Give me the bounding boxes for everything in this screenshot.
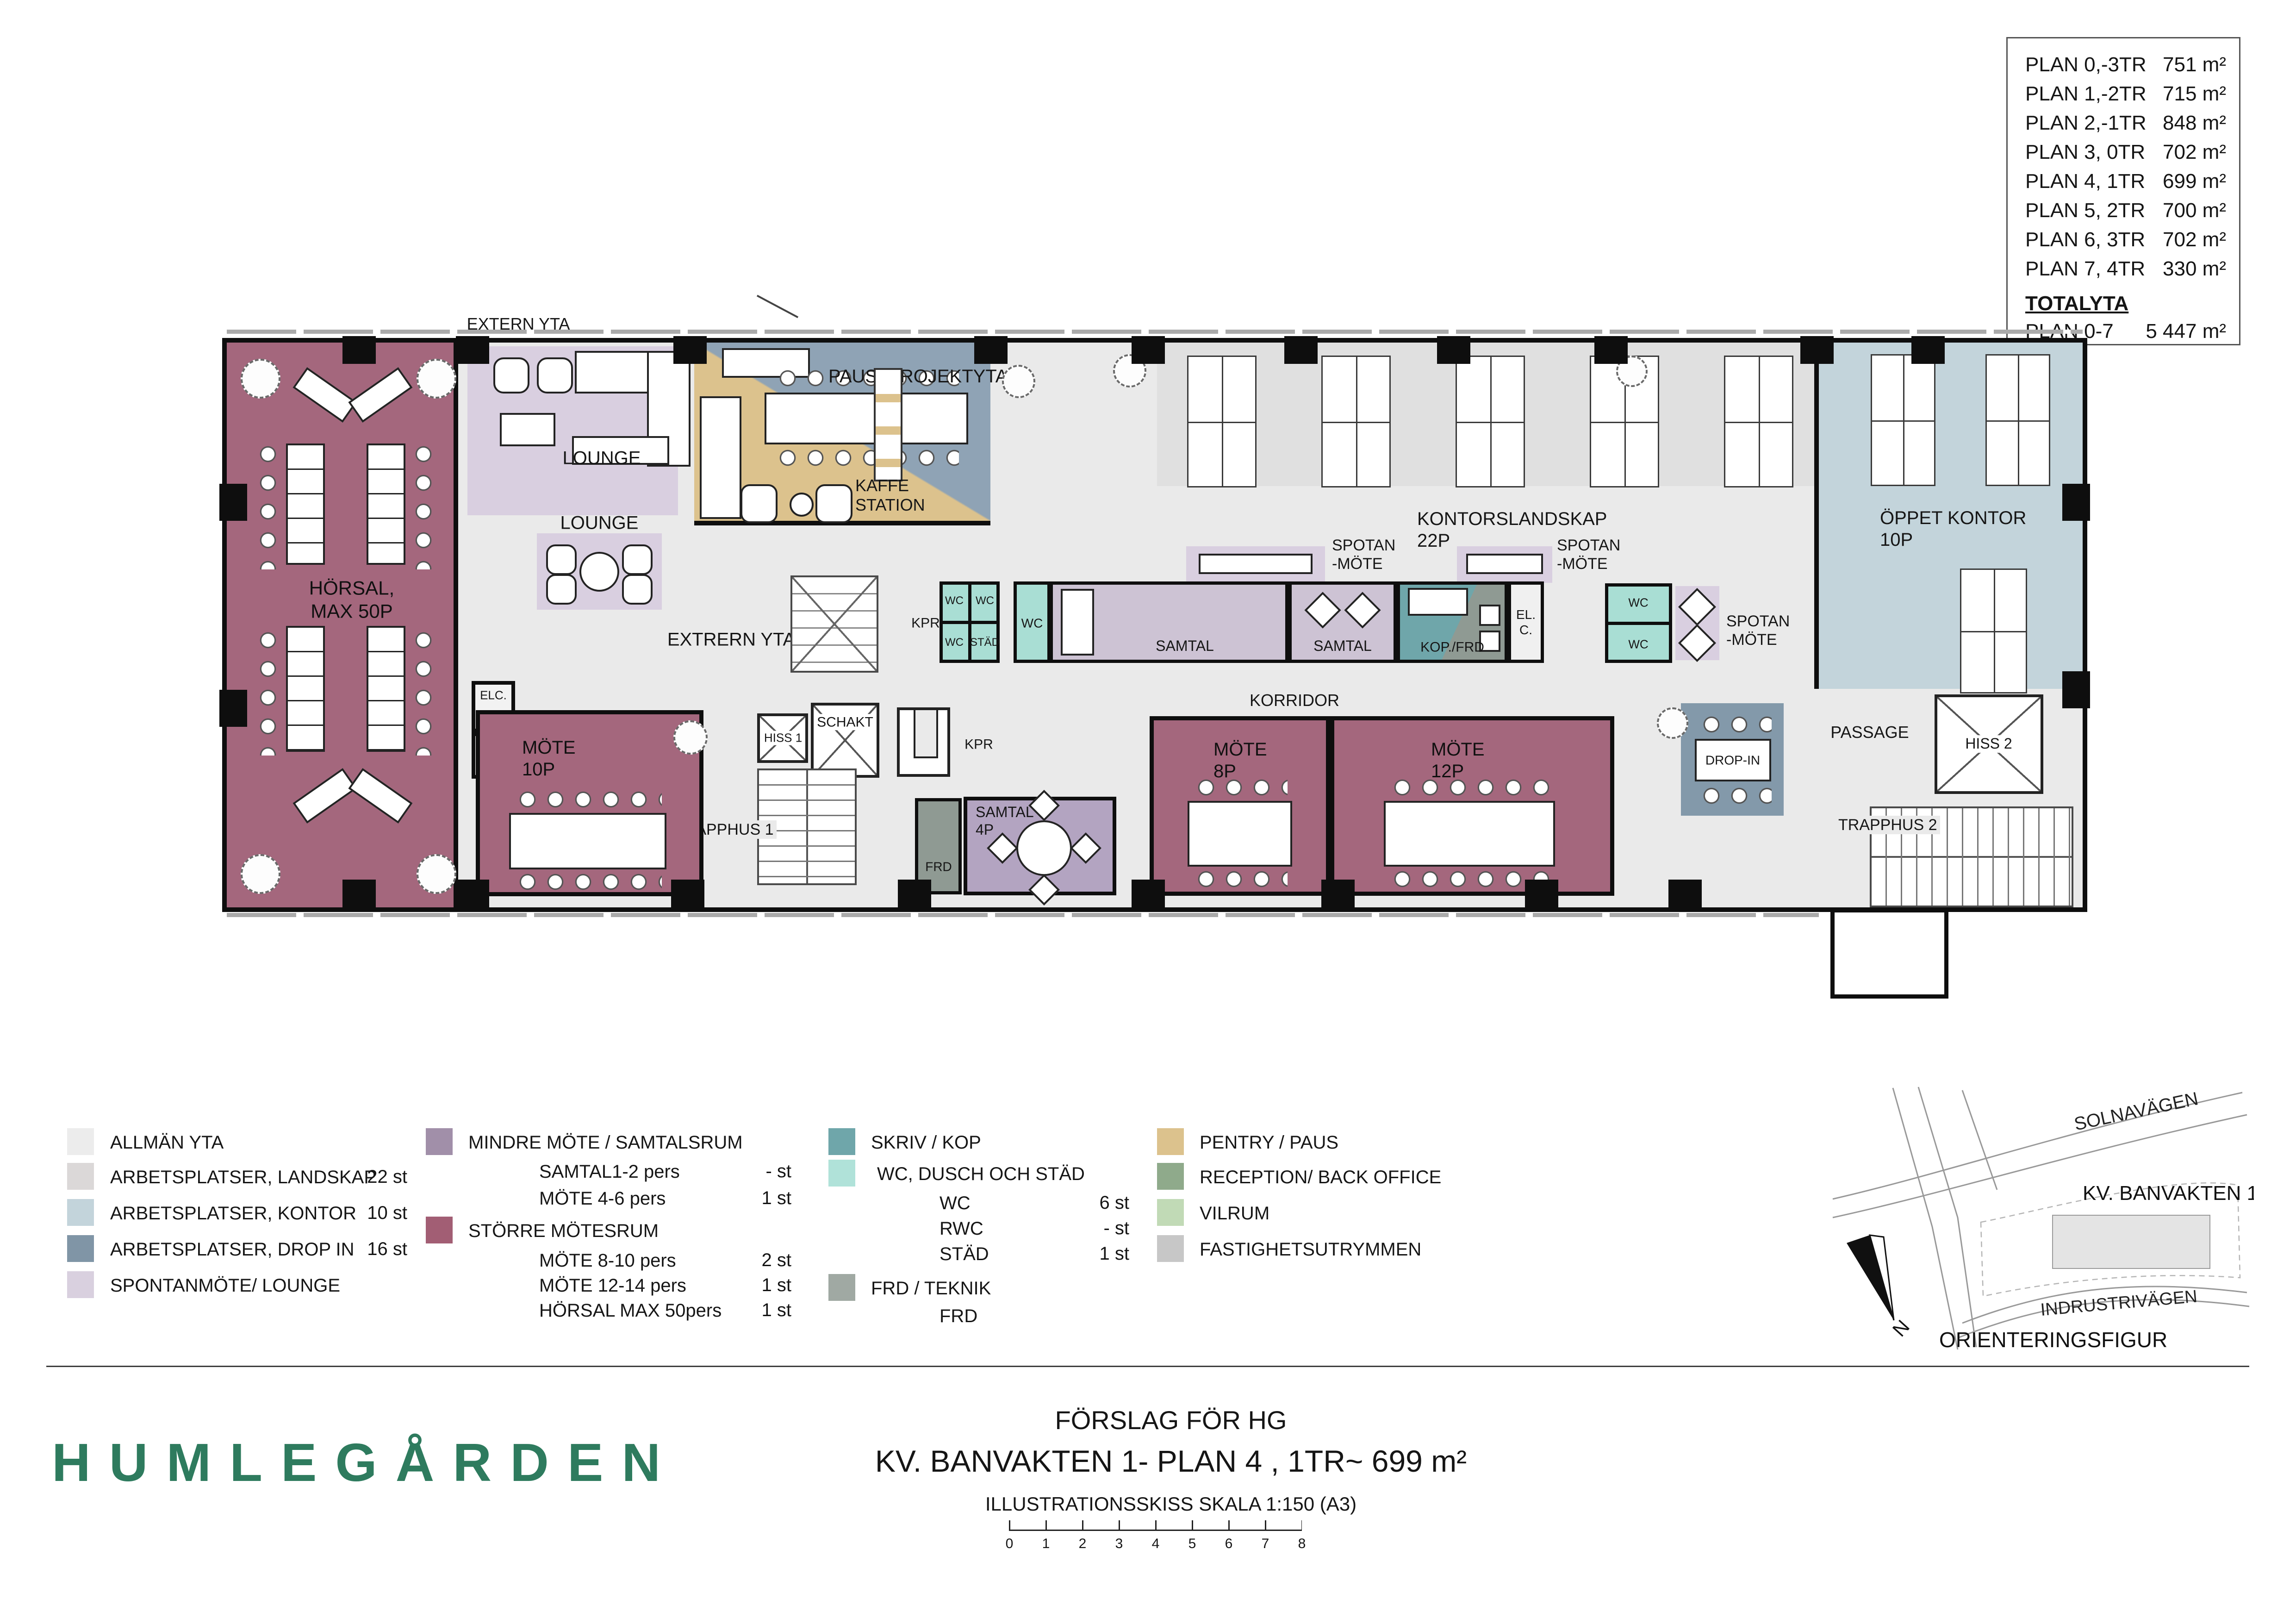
legend-label: RECEPTION/ BACK OFFICE bbox=[1200, 1167, 1441, 1188]
pillar bbox=[1132, 880, 1165, 907]
block-label: KV. BANVAKTEN 1 bbox=[2083, 1182, 2254, 1205]
side-table bbox=[790, 493, 814, 517]
armchair bbox=[546, 544, 577, 575]
armchair bbox=[493, 357, 529, 394]
legend-sublabel: SAMTAL1-2 pers bbox=[539, 1161, 680, 1183]
scale-number: 0 bbox=[1006, 1536, 1014, 1552]
orientation-figure: SOLNAVÄGEN KV. BANVAKTEN 1 INDRUSTRIVÄGE… bbox=[1823, 1079, 2254, 1352]
swatch-skriv-kop bbox=[828, 1128, 855, 1155]
scale-number: 5 bbox=[1188, 1536, 1196, 1552]
legend-sublabel: MÖTE 4-6 pers bbox=[539, 1188, 666, 1210]
divider-line bbox=[46, 1366, 2249, 1367]
row-value: 715 m² bbox=[2163, 82, 2226, 106]
pillar bbox=[1594, 336, 1628, 364]
pillar bbox=[1437, 336, 1470, 364]
desk-cluster bbox=[1985, 354, 2050, 486]
chairs bbox=[1698, 714, 1772, 735]
plant bbox=[241, 359, 280, 399]
chairs bbox=[774, 447, 959, 468]
horsal-table-column bbox=[286, 443, 325, 565]
table-row: PLAN 7, 4TR330 m² bbox=[2025, 257, 2226, 281]
label-paus-projektyta: PAUS/ PROJEKTYTA bbox=[828, 366, 1008, 387]
legend-label: PENTRY / PAUS bbox=[1200, 1132, 1338, 1154]
row-label: PLAN 3, 0TR bbox=[2025, 141, 2145, 164]
legend-count: 22 st bbox=[338, 1167, 407, 1187]
label-frd: FRD bbox=[925, 859, 952, 874]
legend-count: 1 st bbox=[722, 1188, 791, 1209]
legend-label: ARBETSPLATSER, DROP IN bbox=[110, 1239, 355, 1261]
legend-count: 6 st bbox=[1060, 1193, 1129, 1213]
label-wc: WC bbox=[1021, 615, 1043, 631]
horsal-table-column bbox=[367, 626, 405, 752]
label-passage: PASSAGE bbox=[1830, 723, 1909, 742]
row-label: PLAN 6, 3TR bbox=[2025, 228, 2145, 251]
label-hiss1: HISS 1 bbox=[762, 731, 804, 745]
chairs bbox=[413, 440, 434, 569]
humlegarden-logo: HUMLEGÅRDEN bbox=[52, 1431, 679, 1493]
scale-number: 2 bbox=[1079, 1536, 1087, 1552]
swatch-frd-teknik bbox=[828, 1274, 855, 1301]
label-korridor: KORRIDOR bbox=[1250, 691, 1339, 710]
armchair bbox=[537, 357, 573, 394]
coffee-table bbox=[500, 413, 555, 446]
row-value: 848 m² bbox=[2163, 112, 2226, 135]
row-label: PLAN 0,-3TR bbox=[2025, 53, 2147, 76]
row-value: 702 m² bbox=[2163, 228, 2226, 251]
label-spotanmote: SPOTAN -MÖTE bbox=[1557, 536, 1620, 573]
scale-bar bbox=[1009, 1520, 1302, 1531]
scale-number: 3 bbox=[1115, 1536, 1123, 1552]
scale-number: 8 bbox=[1298, 1536, 1306, 1552]
legend-label: VILRUM bbox=[1200, 1203, 1269, 1224]
total-heading: TOTALYTA bbox=[2025, 292, 2226, 315]
pillar bbox=[1525, 880, 1558, 907]
scale-number: 1 bbox=[1042, 1536, 1050, 1552]
swatch-wc-dusch bbox=[828, 1160, 855, 1187]
label-mote-8p: MÖTE 8P bbox=[1213, 739, 1267, 782]
label-stad: STÄD bbox=[970, 636, 1000, 649]
title-line-3: ILLUSTRATIONSSKISS SKALA 1:150 (A3) bbox=[985, 1493, 1356, 1515]
label-hiss2: HISS 2 bbox=[1962, 735, 2015, 753]
pillar bbox=[2062, 671, 2090, 708]
row-label: PLAN 4, 1TR bbox=[2025, 170, 2145, 193]
label-samtal: SAMTAL bbox=[1156, 637, 1214, 655]
standing-table bbox=[1199, 554, 1313, 574]
swatch-reception bbox=[1157, 1163, 1184, 1190]
horsal-table-column bbox=[367, 443, 405, 565]
label-samtal: SAMTAL bbox=[1313, 637, 1372, 655]
site-building bbox=[2053, 1215, 2210, 1268]
scale-number: 6 bbox=[1225, 1536, 1233, 1552]
legend-sublabel: WC bbox=[940, 1193, 971, 1214]
pillar bbox=[898, 880, 931, 907]
legend-count: 16 st bbox=[338, 1239, 407, 1260]
meeting-table bbox=[1188, 801, 1292, 867]
legend-label: ARBETSPLATSER, LANDSKAP bbox=[110, 1167, 376, 1188]
chairs bbox=[1388, 777, 1550, 798]
window-band-north bbox=[227, 330, 2083, 334]
label-el-c: EL. C. bbox=[1516, 607, 1536, 637]
legend-count: 2 st bbox=[722, 1250, 791, 1271]
legend-label: ARBETSPLATSER, KONTOR bbox=[110, 1203, 356, 1224]
desk-cluster bbox=[1321, 356, 1391, 487]
standing-table bbox=[1466, 554, 1543, 574]
swatch-storre-motesrum bbox=[426, 1217, 453, 1243]
pillar bbox=[219, 484, 247, 521]
chairs bbox=[1192, 777, 1288, 798]
room-horsal bbox=[227, 343, 458, 907]
plant bbox=[417, 854, 456, 894]
row-label: PLAN 5, 2TR bbox=[2025, 199, 2145, 222]
stair-upper bbox=[790, 575, 878, 673]
legend-label: MINDRE MÖTE / SAMTALSRUM bbox=[468, 1132, 743, 1154]
scale-number: 4 bbox=[1152, 1536, 1160, 1552]
horsal-table-column bbox=[286, 626, 325, 752]
label-horsal: HÖRSAL, MAX 50P bbox=[309, 576, 394, 622]
road-label: SOLNAVÄGEN bbox=[2072, 1088, 2200, 1135]
pillar bbox=[974, 336, 1008, 364]
tick-mark bbox=[757, 295, 798, 318]
row-value: 330 m² bbox=[2163, 257, 2226, 281]
label-lounge-upper: LOUNGE bbox=[563, 447, 641, 469]
row-label: PLAN 7, 4TR bbox=[2025, 257, 2145, 281]
row-value: 702 m² bbox=[2163, 141, 2226, 164]
armchair bbox=[740, 484, 778, 523]
meeting-table bbox=[509, 813, 666, 869]
armchair bbox=[815, 484, 852, 523]
floorplan-sheet: PLAN 0,-3TR751 m² PLAN 1,-2TR715 m² PLAN… bbox=[0, 0, 2296, 1624]
north-label: N bbox=[1888, 1316, 1914, 1341]
kaffe-counter bbox=[874, 368, 902, 481]
round-table bbox=[579, 552, 619, 592]
title-line-2: KV. BANVAKTEN 1- PLAN 4 , 1TR~ 699 m² bbox=[875, 1443, 1467, 1479]
label-wc: WC bbox=[945, 594, 964, 607]
label-wc: WC bbox=[1628, 637, 1648, 652]
legend-label: SPONTANMÖTE/ LOUNGE bbox=[110, 1275, 340, 1297]
chairs bbox=[514, 789, 662, 810]
armchair bbox=[622, 544, 653, 575]
pillar bbox=[1132, 336, 1165, 364]
legend-label: FASTIGHETSUTRYMMEN bbox=[1200, 1239, 1421, 1261]
orientation-caption: ORIENTERINGSFIGUR bbox=[1939, 1328, 2167, 1352]
legend-count: 1 st bbox=[722, 1275, 791, 1296]
table-row: PLAN 6, 3TR702 m² bbox=[2025, 228, 2226, 251]
table-row: PLAN 3, 0TR702 m² bbox=[2025, 141, 2226, 164]
swatch-vilrum bbox=[1157, 1199, 1184, 1226]
swatch-allman-yta bbox=[67, 1128, 94, 1155]
area-table: PLAN 0,-3TR751 m² PLAN 1,-2TR715 m² PLAN… bbox=[2006, 37, 2240, 345]
label-trapphus2: TRAPPHUS 2 bbox=[1836, 816, 1940, 834]
pillar bbox=[219, 690, 247, 727]
label-spotanmote: SPOTAN -MÖTE bbox=[1726, 612, 1790, 649]
stair-extension bbox=[1830, 908, 1948, 999]
plant bbox=[673, 720, 708, 755]
chairs bbox=[514, 871, 662, 893]
label-kpr: KPR bbox=[911, 615, 940, 631]
legend-sublabel: MÖTE 12-14 pers bbox=[539, 1275, 686, 1297]
table-row: PLAN 2,-1TR848 m² bbox=[2025, 112, 2226, 135]
table-row: PLAN 4, 1TR699 m² bbox=[2025, 170, 2226, 193]
pillar bbox=[456, 880, 489, 907]
legend-label: STÖRRE MÖTESRUM bbox=[468, 1220, 659, 1242]
duct-slot bbox=[914, 710, 938, 758]
scale-number: 7 bbox=[1262, 1536, 1269, 1552]
chairs bbox=[413, 626, 434, 756]
legend-sublabel: RWC bbox=[940, 1218, 983, 1240]
table-row: PLAN 0,-3TR751 m² bbox=[2025, 53, 2226, 76]
plant bbox=[1002, 365, 1035, 398]
kpr-duct bbox=[897, 707, 950, 777]
label-kaffe-station: KAFFE STATION bbox=[855, 476, 925, 515]
plant bbox=[417, 359, 456, 399]
project-table bbox=[765, 393, 968, 444]
label-extrern-yta: EXTRERN YTA bbox=[667, 629, 795, 650]
legend-label: WC, DUSCH OCH STÄD bbox=[877, 1163, 1085, 1185]
pillar bbox=[342, 336, 376, 364]
label-kpr: KPR bbox=[964, 736, 993, 752]
label-spotanmote: SPOTAN -MÖTE bbox=[1332, 536, 1395, 573]
row-value: 699 m² bbox=[2163, 170, 2226, 193]
cabinet bbox=[1479, 605, 1500, 626]
swatch-dropin bbox=[67, 1235, 94, 1262]
pillar bbox=[1284, 336, 1318, 364]
window-band-south bbox=[227, 913, 1819, 917]
swatch-spontanmote bbox=[67, 1271, 94, 1298]
label-mote-12p: MÖTE 12P bbox=[1431, 739, 1485, 782]
row-label: PLAN 1,-2TR bbox=[2025, 82, 2147, 106]
pillar bbox=[671, 880, 704, 907]
round-table bbox=[1016, 820, 1072, 876]
armchair bbox=[546, 574, 577, 605]
chairs bbox=[257, 440, 279, 569]
legend-sublabel: FRD bbox=[940, 1305, 977, 1327]
title-line-1: FÖRSLAG FÖR HG bbox=[1055, 1405, 1287, 1435]
legend-label: SKRIV / KOP bbox=[871, 1132, 981, 1154]
plant bbox=[1657, 707, 1688, 739]
chairs bbox=[1192, 868, 1288, 890]
table-row: PLAN 1,-2TR715 m² bbox=[2025, 82, 2226, 106]
chairs bbox=[1698, 785, 1772, 806]
legend-count: - st bbox=[1060, 1218, 1129, 1239]
chairs bbox=[257, 626, 279, 756]
label-wc: WC bbox=[976, 594, 994, 607]
swatch-kontor bbox=[67, 1199, 94, 1226]
label-lounge-center: LOUNGE bbox=[560, 512, 639, 534]
room-wc-cluster bbox=[940, 581, 1000, 663]
swatch-fastighet bbox=[1157, 1235, 1184, 1262]
label-wc: WC bbox=[945, 636, 964, 649]
swatch-landskap bbox=[67, 1163, 94, 1190]
legend-label: ALLMÄN YTA bbox=[110, 1132, 224, 1154]
pillar bbox=[1911, 336, 1945, 364]
label-oppet-kontor: ÖPPET KONTOR 10P bbox=[1880, 507, 2026, 551]
pillar bbox=[1321, 880, 1355, 907]
label-elc: ELC. bbox=[480, 688, 507, 703]
copier bbox=[1408, 588, 1468, 616]
desk-cluster bbox=[1724, 356, 1793, 487]
legend-sublabel: MÖTE 8-10 pers bbox=[539, 1250, 676, 1272]
plant bbox=[241, 854, 280, 894]
desk-cluster bbox=[1871, 354, 1935, 486]
road-label: INDRUSTRIVÄGEN bbox=[2040, 1287, 2198, 1319]
pillar bbox=[456, 336, 489, 364]
label-schakt: SCHAKT bbox=[815, 714, 875, 730]
legend-count: 1 st bbox=[722, 1300, 791, 1321]
wardrobe bbox=[1061, 589, 1094, 656]
pillar bbox=[1800, 336, 1834, 364]
swatch-pentry bbox=[1157, 1128, 1184, 1155]
armchair bbox=[622, 574, 653, 605]
legend-count: 1 st bbox=[1060, 1243, 1129, 1264]
desk-cluster bbox=[1960, 568, 2027, 693]
legend-sublabel: HÖRSAL MAX 50pers bbox=[539, 1300, 722, 1322]
legend-count: - st bbox=[722, 1161, 791, 1182]
row-label: PLAN 2,-1TR bbox=[2025, 112, 2147, 135]
meeting-table bbox=[1384, 801, 1555, 867]
sofa bbox=[700, 396, 741, 519]
swatch-mindre-mote bbox=[426, 1128, 453, 1155]
label-wc: WC bbox=[1628, 596, 1648, 610]
pillar bbox=[342, 880, 376, 907]
legend-count: 10 st bbox=[338, 1203, 407, 1224]
pillar bbox=[1668, 880, 1702, 907]
label-mote-10p: MÖTE 10P bbox=[522, 737, 576, 781]
pillar bbox=[2062, 484, 2090, 521]
row-value: 751 m² bbox=[2163, 53, 2226, 76]
row-value: 700 m² bbox=[2163, 199, 2226, 222]
desk-cluster bbox=[1187, 356, 1257, 487]
label-dropin: DROP-IN bbox=[1705, 752, 1760, 768]
legend-label: FRD / TEKNIK bbox=[871, 1278, 991, 1299]
desk-cluster bbox=[1456, 356, 1525, 487]
pillar bbox=[673, 336, 707, 364]
label-kop-frd: KOP./FRD bbox=[1420, 639, 1484, 655]
legend-sublabel: STÄD bbox=[940, 1243, 989, 1265]
table-row: PLAN 5, 2TR700 m² bbox=[2025, 199, 2226, 222]
